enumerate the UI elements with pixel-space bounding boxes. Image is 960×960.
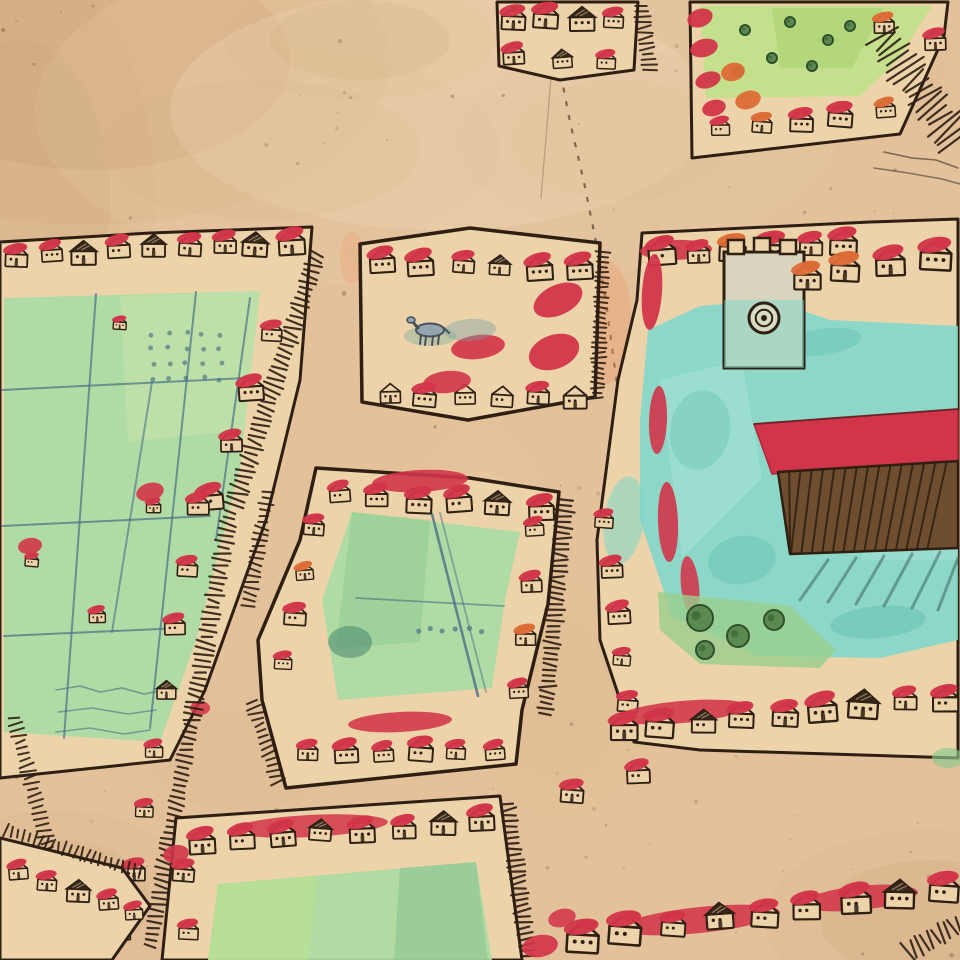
orchard-dots	[185, 347, 190, 352]
orchard-dots	[201, 347, 206, 352]
hatch-stroke	[559, 499, 573, 501]
house-door	[480, 823, 484, 830]
hatch-stroke	[597, 261, 608, 262]
hatch-stroke	[9, 718, 20, 719]
hatch-stroke	[203, 624, 216, 625]
house-door	[536, 398, 539, 404]
paper-speckle	[694, 800, 698, 804]
hatch-stroke	[506, 837, 518, 839]
house-door	[806, 282, 810, 289]
tree-shade	[768, 615, 775, 622]
house-door	[76, 895, 80, 901]
cm-window-dots	[467, 626, 472, 631]
hatch-stroke	[593, 377, 603, 378]
hatch-stroke	[595, 276, 609, 277]
paper-speckle	[556, 772, 559, 775]
paper-speckle	[796, 814, 798, 816]
house-window	[370, 498, 373, 501]
tree-shade	[742, 27, 746, 31]
house-door	[15, 261, 18, 267]
house-window	[519, 637, 522, 640]
tree-crown	[764, 610, 784, 630]
garden-tree	[785, 17, 795, 27]
courtyard-tree	[696, 641, 714, 659]
tree-shade	[809, 63, 813, 67]
cm-window-dots	[428, 626, 433, 631]
hatch-stroke	[592, 347, 606, 348]
hatch-stroke	[598, 266, 607, 267]
cm-window-dots	[453, 626, 458, 631]
orchard-dots	[200, 361, 205, 366]
orchard-dots	[217, 378, 222, 383]
house-door	[854, 905, 859, 913]
garden-tree	[767, 53, 777, 63]
house-window	[587, 21, 590, 24]
tree-shade	[847, 23, 851, 27]
hatch-stroke	[594, 297, 609, 298]
house-door	[82, 258, 86, 265]
paper-speckle	[596, 492, 600, 496]
house-door	[253, 249, 257, 256]
hatch-stroke	[544, 620, 563, 621]
paper-speckle	[502, 94, 505, 97]
paper-speckle	[349, 96, 352, 99]
house-door	[883, 27, 886, 32]
paper-speckle	[129, 216, 132, 219]
hatch-stroke	[552, 560, 567, 561]
paper-speckle	[60, 11, 62, 13]
house-door	[809, 249, 812, 255]
orchard-dots	[220, 361, 225, 366]
tree-shade	[769, 55, 773, 59]
paper-speckle	[623, 867, 625, 869]
house-window	[568, 399, 571, 402]
house-window	[629, 729, 632, 732]
house-door	[224, 247, 227, 253]
hatch-stroke	[594, 332, 606, 333]
hatch-stroke	[543, 670, 556, 671]
paper-speckle	[296, 162, 300, 166]
house-door	[543, 21, 547, 28]
hall-facade	[778, 461, 958, 554]
paper-speckle	[322, 142, 325, 145]
house-door	[512, 58, 515, 64]
house-window	[149, 750, 151, 752]
house-door	[389, 397, 392, 402]
hatch-stroke	[597, 292, 606, 293]
house-window	[165, 692, 167, 694]
house-door	[888, 267, 892, 275]
tree-shade	[731, 630, 739, 638]
paper-speckle	[584, 855, 588, 859]
house-door	[403, 832, 406, 838]
orchard-dots	[216, 346, 221, 351]
paper-speckle	[335, 126, 339, 130]
house-door	[843, 273, 847, 281]
hatch-stroke	[643, 70, 657, 71]
cm-window-dots	[416, 629, 421, 634]
horse-leg	[420, 335, 421, 344]
house-door	[304, 575, 307, 580]
orchard-dots	[148, 345, 153, 350]
paper-speckle	[570, 722, 573, 725]
house-window	[153, 750, 155, 752]
hatch-stroke	[595, 302, 608, 303]
paper-speckle	[626, 749, 629, 752]
house-window	[149, 507, 151, 509]
hatch-stroke	[148, 904, 167, 905]
paper-speckle	[104, 789, 107, 792]
paper-speckle	[949, 953, 954, 958]
house-window	[799, 279, 802, 282]
horse-head	[407, 317, 415, 323]
paper-speckle	[852, 869, 853, 870]
house-window	[616, 729, 619, 732]
paper-speckle	[781, 870, 784, 873]
hatch-stroke	[544, 648, 559, 649]
paper-speckle	[613, 209, 615, 211]
house-window	[224, 244, 227, 247]
house-door	[361, 836, 365, 843]
hatch-stroke	[643, 54, 653, 55]
paper-speckle	[92, 5, 95, 8]
garden-tree	[740, 25, 750, 35]
tree-crown	[740, 25, 750, 35]
paper-speckle	[803, 210, 807, 214]
garden-tree	[823, 35, 833, 45]
paper-speckle	[917, 822, 919, 824]
hatch-stroke	[555, 544, 568, 545]
hatch-stroke	[592, 362, 605, 363]
paper-speckle	[829, 187, 832, 190]
cm-teal-blob	[328, 626, 372, 658]
house-window	[152, 248, 155, 251]
hatch-stroke	[546, 637, 558, 638]
hatch-stroke	[503, 820, 518, 821]
house-window	[153, 507, 155, 509]
house-door	[718, 921, 722, 928]
hatch-stroke	[110, 858, 111, 868]
paper-speckle	[578, 123, 580, 125]
house-door	[697, 257, 700, 263]
house-window	[82, 255, 85, 258]
house-door	[462, 267, 465, 273]
horse-leg	[425, 336, 426, 345]
hatch-stroke	[152, 892, 167, 893]
house-door	[620, 660, 623, 665]
orchard-dots	[166, 376, 171, 381]
orchard-dots	[150, 377, 155, 382]
house-window	[696, 723, 699, 726]
tree-shade	[692, 611, 701, 620]
garden-tree	[807, 61, 817, 71]
hatch-stroke	[507, 860, 524, 862]
paper-speckle	[343, 91, 346, 94]
hatch-stroke	[17, 830, 18, 838]
tree-crown	[687, 605, 713, 631]
tower-rosette	[749, 303, 779, 333]
house-window	[574, 399, 577, 402]
paper-speckle	[1, 28, 5, 32]
hatch-stroke	[548, 615, 562, 616]
hatch-stroke	[551, 571, 568, 572]
hatch-stroke	[262, 492, 273, 493]
orchard-dots	[167, 331, 172, 336]
tree-crown	[727, 625, 749, 647]
house-door	[17, 874, 20, 879]
orchard-dots	[185, 330, 190, 335]
tree-crown	[696, 641, 714, 659]
paper-speckle	[861, 952, 864, 955]
paper-speckle	[342, 291, 347, 296]
paper-speckle	[735, 932, 737, 934]
hatch-stroke	[543, 675, 555, 676]
paper-speckle	[728, 186, 730, 188]
house-window	[381, 498, 384, 501]
tower-battlement	[728, 240, 744, 254]
house-window	[197, 506, 200, 509]
hatch-stroke	[637, 32, 653, 33]
house-window	[191, 506, 194, 509]
house-door	[904, 703, 907, 709]
house-door	[165, 694, 168, 699]
house-window	[375, 498, 378, 501]
tower-battlement	[754, 238, 770, 252]
house-window	[719, 128, 721, 130]
house-door	[107, 904, 110, 909]
paper-speckle	[546, 866, 550, 870]
paper-speckle	[909, 851, 912, 854]
house-door	[201, 847, 205, 854]
paper-speckle	[568, 610, 569, 611]
paper-speckle	[734, 755, 737, 758]
hatch-stroke	[553, 576, 564, 577]
paper-speckle	[15, 20, 17, 22]
tree-shade	[699, 645, 705, 651]
house-door	[143, 812, 146, 817]
orchard-dots	[199, 332, 204, 337]
house-door	[153, 509, 155, 513]
hatch-stroke	[591, 397, 603, 398]
tree-crown	[767, 53, 777, 63]
hatch-stroke	[58, 842, 59, 850]
hatch-stroke	[508, 843, 519, 844]
house-window	[813, 279, 816, 282]
cm-window-dots	[479, 629, 484, 634]
hatch-stroke	[207, 607, 219, 608]
house-door	[306, 755, 309, 760]
orchard-dots	[165, 345, 170, 350]
hatch-stroke	[503, 804, 513, 805]
tree-shade	[787, 19, 791, 23]
house-door	[570, 796, 574, 802]
house-window	[229, 244, 232, 247]
hatch-stroke	[634, 16, 650, 17]
house-window	[623, 729, 626, 732]
house-door	[181, 875, 185, 881]
house-door	[454, 754, 457, 759]
house-door	[119, 326, 121, 330]
cm-window-dots	[439, 628, 444, 633]
paper-speckle	[338, 39, 343, 44]
courtyard-tree	[687, 605, 713, 631]
orchard-dots	[184, 376, 189, 381]
paper-speckle	[256, 599, 259, 602]
house-window	[574, 21, 577, 24]
garden-tree	[845, 21, 855, 31]
bc-courtyard-dark	[394, 862, 488, 960]
hatch-stroke	[560, 505, 571, 506]
orchard-dots	[202, 375, 207, 380]
paper-speckle	[451, 95, 454, 98]
city-map-svg	[0, 0, 960, 960]
house-door	[153, 752, 156, 757]
paper-speckle	[789, 838, 791, 840]
paper-speckle	[559, 485, 561, 487]
courtyard-tree	[764, 610, 784, 630]
hatch-stroke	[516, 916, 530, 917]
house-door	[290, 247, 294, 254]
hatch-stroke	[544, 659, 558, 660]
hatch-stroke	[37, 830, 51, 831]
paper-speckle	[649, 844, 650, 845]
hatch-stroke	[506, 849, 521, 850]
house-window	[76, 255, 79, 258]
house-door	[45, 885, 48, 890]
paper-stain	[100, 80, 420, 220]
hatch-stroke	[263, 497, 272, 498]
house-window	[146, 248, 149, 251]
house-door	[530, 586, 533, 592]
paper-speckle	[592, 807, 597, 812]
paper-speckle	[873, 210, 876, 213]
bc-courtyard-lime	[208, 876, 318, 960]
tree-crown	[807, 61, 817, 71]
paper-speckle	[893, 213, 895, 215]
hatch-stroke	[506, 832, 518, 833]
horse-leg	[432, 336, 433, 345]
paper-speckle	[386, 139, 388, 141]
house-door	[498, 269, 501, 275]
house-door	[442, 828, 446, 835]
house-door	[152, 250, 155, 256]
house-door	[783, 719, 787, 726]
house-door	[821, 714, 826, 722]
hatch-stroke	[157, 874, 169, 875]
house-door	[860, 710, 865, 718]
hatch-stroke	[598, 257, 608, 258]
tree-crown	[785, 17, 795, 27]
house-door	[622, 733, 626, 740]
paper-speckle	[577, 486, 581, 490]
hatch-stroke	[640, 43, 653, 44]
paper-speckle	[89, 819, 93, 823]
paper-speckle	[182, 170, 183, 171]
house-door	[495, 508, 499, 515]
paper-speckle	[336, 112, 338, 114]
house-door	[760, 127, 763, 132]
tree-shade	[825, 37, 829, 41]
horse-leg	[438, 335, 439, 344]
house-window	[160, 692, 162, 694]
house-window	[218, 244, 221, 247]
paper-speckle	[33, 63, 36, 66]
house-window	[944, 701, 947, 704]
hatch-stroke	[146, 934, 158, 935]
orchard-dots	[149, 333, 154, 338]
hatch-stroke	[642, 59, 656, 60]
hatch-stroke	[596, 287, 608, 288]
hatch-stroke	[591, 387, 604, 388]
paper-speckle	[675, 44, 679, 48]
paper-stain	[270, 0, 450, 80]
house-door	[281, 839, 285, 846]
paper-speckle	[674, 69, 677, 72]
orchard-dots	[152, 362, 157, 367]
orchard-dots	[217, 333, 222, 338]
orchard-dots	[182, 360, 187, 365]
house-door	[133, 915, 136, 920]
house-door	[188, 250, 192, 256]
house-door	[934, 44, 937, 50]
paper-speckle	[492, 788, 494, 790]
orchard-dots	[168, 362, 173, 367]
house-door	[312, 529, 315, 535]
house-window	[938, 701, 941, 704]
paper-speckle	[605, 824, 607, 826]
house-window	[524, 637, 527, 640]
left-block-fields-light	[120, 291, 260, 442]
rosette-center	[761, 315, 767, 321]
house-door	[230, 446, 233, 452]
house-door	[524, 640, 527, 645]
paper-speckle	[298, 94, 301, 97]
house-window	[581, 21, 584, 24]
house-window	[702, 723, 705, 726]
tree-crown	[845, 21, 855, 31]
paper-speckle	[146, 865, 148, 867]
paper-speckle	[433, 425, 436, 428]
paper-speckle	[265, 143, 269, 147]
courtyard-tree	[727, 625, 749, 647]
tree-crown	[823, 35, 833, 45]
house-door	[511, 23, 515, 30]
map-canvas	[0, 0, 960, 960]
tower-battlement	[780, 240, 796, 254]
hatch-stroke	[205, 595, 224, 596]
hatch-stroke	[122, 861, 123, 873]
house-window	[806, 279, 809, 282]
house-window	[156, 507, 158, 509]
facade-hatch-line	[789, 471, 790, 554]
hatch-stroke	[186, 702, 204, 703]
house-window	[715, 128, 717, 130]
house-door	[574, 402, 577, 408]
house-door	[96, 618, 98, 622]
